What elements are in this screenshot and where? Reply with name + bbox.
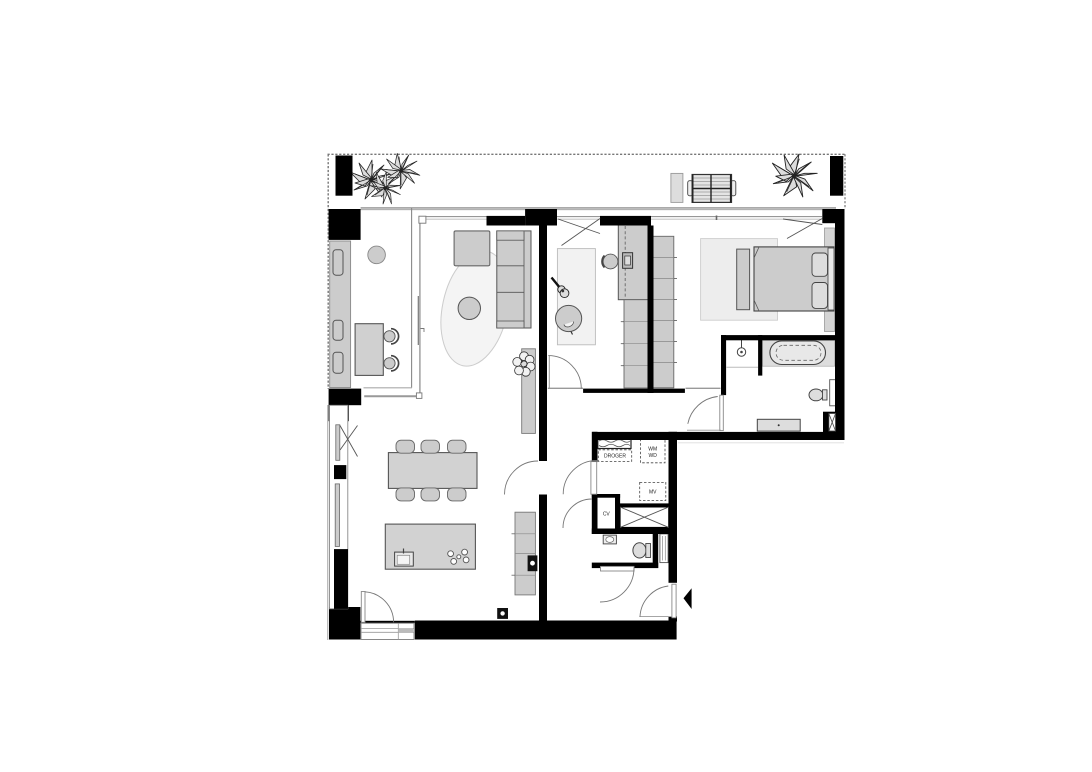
- svg-text:MV: MV: [649, 490, 657, 496]
- svg-text:WD: WD: [649, 453, 658, 459]
- svg-text:DROGER: DROGER: [604, 454, 626, 460]
- svg-text:CV: CV: [603, 512, 611, 518]
- svg-text:WM: WM: [648, 447, 657, 453]
